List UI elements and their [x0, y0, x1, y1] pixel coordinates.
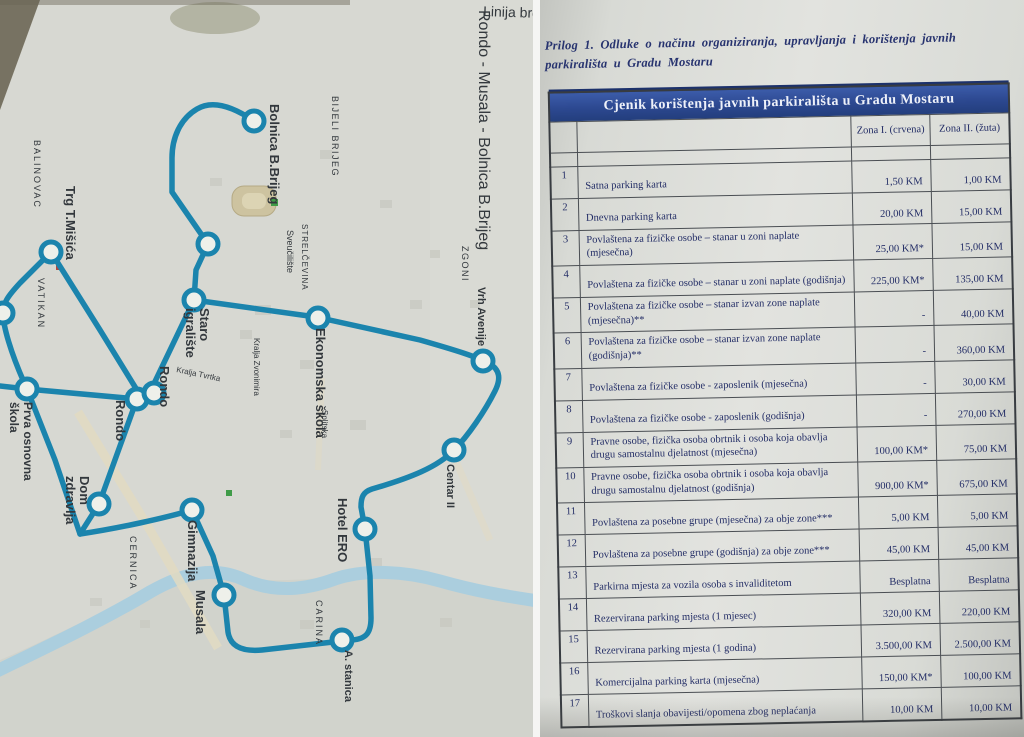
- footnote-1: *Parking karta vrijedi u I. i II. Zoni: [617, 732, 1024, 737]
- route-stop: [444, 440, 464, 460]
- zona1-value: 20,00 KM: [852, 191, 932, 225]
- route-stop: [17, 379, 37, 399]
- empty-cell: [549, 121, 577, 153]
- zona2-column-header: Zona II. (žuta): [930, 113, 1010, 146]
- zona1-value: 5,00 KM: [859, 496, 939, 530]
- zona1-value: 150,00 KM*: [862, 656, 942, 690]
- route-stop: [308, 308, 328, 328]
- zona2-value: 15,00 KM: [932, 222, 1012, 259]
- area-label-cernica: CERNICA: [128, 536, 138, 591]
- stop-label-trg-t-misica: Trg T.Mišića: [63, 186, 78, 260]
- zona1-value: -: [855, 326, 935, 363]
- zona2-value: 75,00 KM: [936, 423, 1016, 460]
- stop-label-prva-osnovna-skola: Prva osnovna: [21, 402, 35, 481]
- row-number: 14: [559, 599, 587, 632]
- route-stop: [198, 234, 218, 254]
- stop-label-dom-zdravlja: zdravlja: [63, 476, 78, 525]
- row-number: 9: [556, 432, 584, 468]
- road-label-kralja-zvonimira: Kralja Zvonimira: [252, 338, 261, 396]
- document-photo: Prilog 1. Odluke o načinu organiziranja,…: [540, 0, 1024, 737]
- zona2-value: 2.500,00 KM: [940, 622, 1020, 656]
- stop-label-bolnica: Bolnica B.Brijeg: [267, 104, 282, 204]
- row-description: Povlaštena za fizičke osobe – stanar u z…: [579, 225, 854, 266]
- row-number: 5: [553, 298, 581, 334]
- road-label-splitska: Splitska: [320, 410, 329, 439]
- stadium-field: [242, 193, 266, 209]
- stop-label-prva-osnovna-skola: škola: [7, 402, 21, 433]
- route-stop: [0, 303, 13, 323]
- stop-label-musala: Musala: [193, 590, 208, 635]
- route-stop: [473, 351, 493, 371]
- document-heading: Prilog 1. Odluke o načinu organiziranja,…: [545, 27, 1010, 75]
- trees: [170, 2, 260, 34]
- zona1-value: 900,00 KM*: [858, 460, 938, 497]
- zona1-value: 1,50 KM: [852, 159, 932, 193]
- zona1-value: 320,00 KM: [860, 592, 940, 626]
- route-stop: [182, 500, 202, 520]
- zona1-value: 25,00 KM*: [853, 223, 933, 260]
- row-number: 12: [558, 535, 586, 568]
- zona1-value: 45,00 KM: [859, 528, 939, 562]
- zona1-value: 10,00 KM: [862, 688, 942, 722]
- row-description: Pravne osobe, fizička osoba obrtnik i os…: [583, 427, 858, 468]
- zona2-value: 40,00 KM: [933, 289, 1013, 326]
- route-stop: [184, 290, 204, 310]
- stop-label-rondo: Rondo: [113, 400, 128, 441]
- zona2-value: 220,00 KM: [939, 590, 1019, 624]
- zona1-column-header: Zona I. (crvena): [851, 114, 931, 147]
- zona2-value: Besplatna: [939, 558, 1019, 592]
- zona1-value: Besplatna: [860, 560, 940, 594]
- zona2-value: 30,00 KM: [935, 359, 1015, 393]
- stop-label-rondo: Rondo: [157, 366, 172, 407]
- area-label-strelcevina: STRELČEVINA: [300, 224, 309, 291]
- empty-cell: [550, 152, 577, 167]
- price-table: Cjenik korištenja javnih parkirališta u …: [548, 82, 1023, 729]
- zona2-value: 675,00 KM: [937, 459, 1017, 496]
- row-number: 10: [556, 467, 584, 503]
- row-number: 8: [555, 400, 583, 433]
- zona1-value: 100,00 KM*: [857, 425, 937, 462]
- screenshot: Linija broj 5,Rondo - Musala - Bolnica B…: [0, 0, 1024, 737]
- zona1-value: -: [856, 393, 936, 427]
- zona2-value: 1,00 KM: [931, 158, 1011, 192]
- park-icon: [226, 490, 232, 496]
- row-number: 7: [554, 368, 582, 401]
- row-number: 3: [552, 230, 580, 266]
- zona1-value: -: [856, 361, 936, 395]
- route-stop: [214, 585, 234, 605]
- route-map: Linija broj 5,Rondo - Musala - Bolnica B…: [0, 0, 533, 737]
- row-description: Pravne osobe, fizička osoba obrtnik i os…: [583, 462, 858, 503]
- stop-label-centar-2: Centar II: [444, 464, 456, 508]
- zona2-value: 100,00 KM: [941, 654, 1021, 688]
- row-number: 13: [558, 567, 586, 600]
- zona2-value: 135,00 KM: [933, 257, 1013, 291]
- row-number: 1: [550, 166, 578, 199]
- route-stop: [41, 242, 61, 262]
- area-label-bijeli-brijeg: BIJELI BRIJEG: [330, 96, 340, 177]
- stop-label-a-stanica: A. stanica: [342, 650, 354, 703]
- area-label-sveuciliste: Sveučilište: [285, 230, 295, 273]
- row-number: 15: [560, 631, 588, 664]
- route-name-title: Rondo - Musala - Bolnica B.Brijeg: [475, 10, 492, 250]
- row-number: 6: [554, 333, 582, 369]
- zona2-value: 5,00 KM: [937, 494, 1017, 528]
- zona2-value: 270,00 KM: [935, 391, 1015, 425]
- row-description: Troškovi slanja obavijesti/opomena zbog …: [588, 689, 863, 727]
- area-label-balinovac: BALINOVAC: [32, 140, 42, 209]
- area-label-carina: CARINA: [314, 600, 324, 646]
- zona2-value: 10,00 KM: [941, 686, 1021, 720]
- route-stop: [355, 519, 375, 539]
- stop-label-gimnazija: Gimnazija: [185, 520, 200, 582]
- area-label-vatikan: VATIKAN: [36, 278, 46, 329]
- footnotes: *Parking karta vrijedi u I. i II. Zoni *…: [617, 732, 1024, 737]
- stop-label-vrh-avenije: Vrh Avenije: [475, 287, 487, 346]
- zona1-value: -: [854, 290, 934, 327]
- row-number: 17: [561, 695, 589, 728]
- zona1-value: 225,00 KM*: [854, 258, 934, 292]
- stop-label-staro-igraliste: igralište: [183, 308, 198, 358]
- row-number: 4: [552, 266, 580, 299]
- zona2-value: 360,00 KM: [934, 324, 1014, 361]
- photo-edge-shadow: [0, 0, 350, 5]
- row-number: 2: [551, 198, 579, 231]
- route-stop: [332, 630, 352, 650]
- photo-seam: [533, 0, 540, 737]
- row-description: Povlaštena za fizičke osobe – stanar izv…: [581, 327, 856, 368]
- stop-label-staro-igraliste: Staro: [197, 308, 212, 341]
- route-stop: [244, 111, 264, 131]
- row-description: Povlaštena za fizičke osobe – stanar izv…: [580, 292, 855, 333]
- zona2-value: 15,00 KM: [931, 190, 1011, 224]
- stop-label-dom-zdravlja: Dom: [77, 476, 92, 505]
- map-photo: Linija broj 5,Rondo - Musala - Bolnica B…: [0, 0, 533, 737]
- zona2-value: 45,00 KM: [938, 526, 1018, 560]
- row-number: 16: [560, 663, 588, 696]
- stop-label-hotel-ero: Hotel ERO: [335, 498, 350, 562]
- zona1-value: 3.500,00 KM: [861, 624, 941, 658]
- area-label-zgoni: ZGONI: [460, 246, 470, 282]
- row-number: 11: [557, 503, 585, 536]
- document-paper: Prilog 1. Odluke o načinu organiziranja,…: [540, 1, 1024, 737]
